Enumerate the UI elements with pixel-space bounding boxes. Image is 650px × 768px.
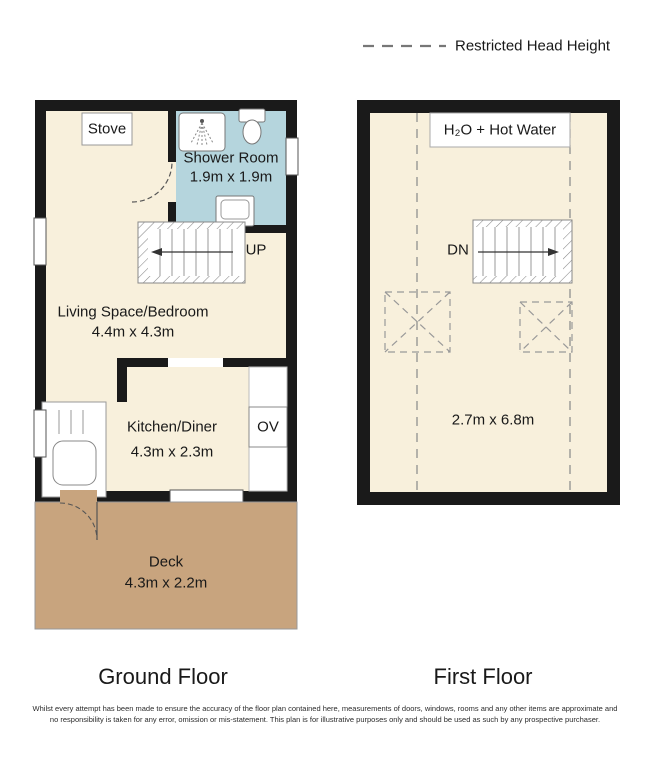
ground-floor-title: Ground Floor bbox=[98, 664, 228, 690]
window-living-left bbox=[34, 218, 46, 265]
stairs-up-label: UP bbox=[246, 242, 267, 259]
window-kitchen-left bbox=[34, 410, 46, 457]
window-kitchen-bottom bbox=[170, 490, 243, 502]
disclaimer-line-1: Whilst every attempt has been made to en… bbox=[25, 704, 625, 715]
kitchen-sink-icon bbox=[42, 402, 106, 497]
kitchen-name: Kitchen/Diner bbox=[127, 419, 217, 436]
first-floor-plan bbox=[357, 100, 620, 505]
staircase-up bbox=[138, 222, 245, 283]
living-room-name: Living Space/Bedroom bbox=[58, 304, 209, 321]
kitchen-wall-stub bbox=[117, 358, 127, 402]
living-room-dims: 4.4m x 4.3m bbox=[92, 324, 175, 341]
shower-room-dims: 1.9m x 1.9m bbox=[190, 169, 273, 186]
stairs-down-label: DN bbox=[447, 242, 469, 259]
deck-name: Deck bbox=[149, 554, 183, 571]
floorplan-canvas: Restricted Head Height Stove Shower Room… bbox=[0, 0, 650, 768]
shower-wall-upper bbox=[168, 111, 176, 162]
kitchen-opening bbox=[168, 358, 223, 367]
deck-door-opening bbox=[60, 490, 97, 503]
disclaimer-text: Whilst every attempt has been made to en… bbox=[25, 704, 625, 725]
deck-dims: 4.3m x 2.2m bbox=[125, 575, 208, 592]
shower-tray-icon bbox=[179, 113, 225, 151]
oven-label: OV bbox=[257, 419, 279, 436]
floorplan-drawing bbox=[0, 0, 650, 768]
first-floor-dims: 2.7m x 6.8m bbox=[452, 412, 535, 429]
legend-label: Restricted Head Height bbox=[455, 38, 610, 55]
kitchen-dims: 4.3m x 2.3m bbox=[131, 444, 214, 461]
shower-room-name: Shower Room bbox=[183, 150, 278, 167]
staircase-down bbox=[473, 220, 572, 283]
window-shower-right bbox=[286, 138, 298, 175]
hot-water-label: H₂O + Hot Water bbox=[444, 122, 556, 139]
first-floor-title: First Floor bbox=[434, 664, 533, 690]
disclaimer-line-2: no responsibility is taken for any error… bbox=[25, 715, 625, 726]
stove-label: Stove bbox=[88, 121, 126, 138]
